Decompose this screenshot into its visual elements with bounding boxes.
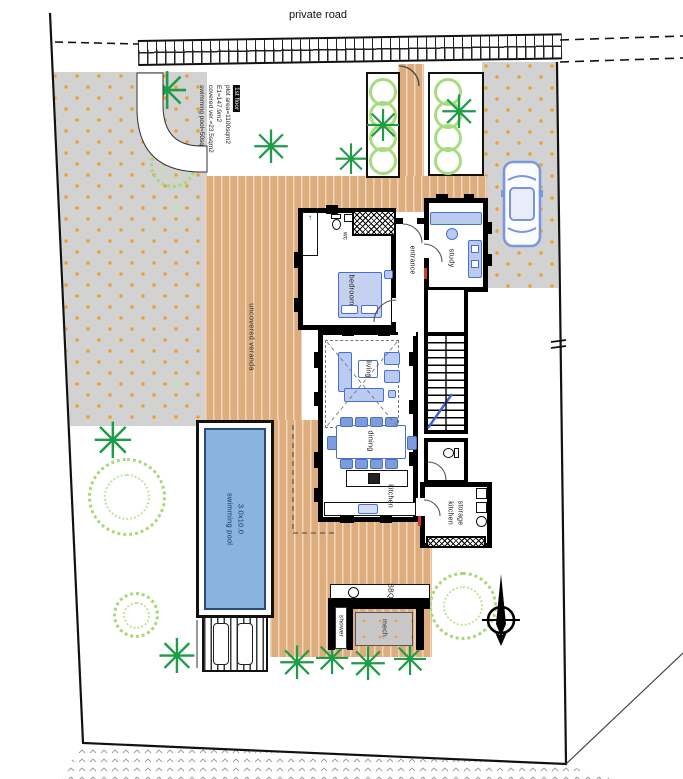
road-dashed-left xyxy=(55,42,138,44)
wc-label: wc xyxy=(342,232,349,240)
dining-label: dining xyxy=(367,430,376,451)
wall-pier xyxy=(409,400,418,414)
mech-label: mech. xyxy=(381,619,388,639)
appliance xyxy=(476,516,487,527)
dining-chair xyxy=(355,459,368,469)
staircase xyxy=(424,332,468,434)
notes-plot-area: plot area=1100sqm2 xyxy=(222,85,231,155)
study-chair xyxy=(446,228,458,240)
palm-tree-icon: ✳ xyxy=(349,641,388,687)
toilet2-tank xyxy=(454,448,459,458)
wall-pier xyxy=(314,392,323,406)
bbq-wall-stub xyxy=(347,606,353,650)
kitchen-label: kitchen xyxy=(387,484,394,508)
wall-pier xyxy=(314,352,323,368)
nightstand xyxy=(384,270,393,279)
stove xyxy=(368,473,380,484)
dining-chair xyxy=(370,459,383,469)
palm-tree-icon: ✳ xyxy=(365,105,402,149)
dining-chair xyxy=(385,417,398,427)
wardrobe xyxy=(352,210,396,236)
notes-e1: E1=147.9m2 xyxy=(214,85,223,155)
dining-chair xyxy=(340,459,353,469)
shrub-circle xyxy=(434,147,462,175)
dining-chair xyxy=(355,417,368,427)
wall-pier xyxy=(483,222,492,234)
palm-tree-icon: ✳ xyxy=(145,66,189,118)
side-table xyxy=(388,390,396,398)
living-label: living xyxy=(365,360,372,377)
site-plan: ↑ ✳ ✳ ✳ ✳ ✳ ✳ ✳ ✳ ✳ xyxy=(0,0,683,779)
kitchen-storage-label-2: storage xyxy=(457,501,464,526)
veranda-deck-west xyxy=(205,176,302,428)
palm-tree-icon: ✳ xyxy=(440,89,479,135)
swimming-pool xyxy=(204,428,266,610)
bbq-wall-stub xyxy=(328,606,335,650)
lounger-deck xyxy=(202,616,268,672)
toilet xyxy=(332,219,341,230)
living-door-gap xyxy=(398,328,416,336)
pool-size-label: 3.0x10.0 xyxy=(237,504,246,534)
pool-label: swimming pool xyxy=(226,493,235,545)
study-label: study xyxy=(448,249,457,268)
toilet2 xyxy=(443,448,454,458)
bbq-wall-stub xyxy=(416,606,424,650)
bush-icon xyxy=(429,572,497,640)
wall-pier xyxy=(409,352,418,366)
armchair xyxy=(384,352,400,365)
sofa-left xyxy=(338,352,352,392)
road-dashed-right-top xyxy=(560,36,683,40)
entrance-label: entrance xyxy=(409,246,416,275)
study-desk xyxy=(430,212,482,225)
cabinet-box xyxy=(471,245,479,253)
wall-pier xyxy=(464,194,474,203)
wall-pier xyxy=(409,452,418,466)
bbq-label: BBQ xyxy=(387,583,394,598)
notes-pool-area: swimming pool=50sqm2 xyxy=(196,85,205,155)
storage-door-gap xyxy=(416,498,426,516)
boundary-tick xyxy=(551,340,566,348)
bedroom-door-gap xyxy=(392,298,402,322)
bush-icon xyxy=(88,458,166,536)
bush-icon xyxy=(113,592,159,638)
bedroom-label: bedroom xyxy=(348,274,357,305)
entrance-jamb xyxy=(417,218,424,224)
appliance xyxy=(476,502,487,513)
veranda-deck-poolside xyxy=(270,420,322,522)
palm-tree-icon: ✳ xyxy=(252,124,291,170)
sun-lounger xyxy=(237,623,253,665)
dining-chair xyxy=(407,436,417,450)
palm-tree-icon: ✳ xyxy=(278,640,317,686)
bush-icon xyxy=(150,142,196,188)
palm-tree-icon: ✳ xyxy=(333,139,368,181)
storage-wall-hatch xyxy=(426,536,486,548)
dining-chair xyxy=(370,417,383,427)
corner-diagonal-line xyxy=(566,653,683,764)
verge-stipple xyxy=(62,744,612,779)
shower-label: shower xyxy=(338,615,345,637)
driveway xyxy=(482,62,558,288)
wall-pier xyxy=(314,452,323,468)
dining-chair xyxy=(385,459,398,469)
notes-floor: 1st floor xyxy=(233,85,240,112)
armchair xyxy=(384,370,400,383)
notes-covered-veranda: covered ver.=23.5sqm2 xyxy=(205,85,214,155)
wc-sink xyxy=(344,214,353,222)
sofa-bottom xyxy=(344,388,384,402)
palm-tree-icon: ✳ xyxy=(157,633,197,681)
wall-pier xyxy=(378,327,390,336)
dining-chair xyxy=(340,417,353,427)
wall-pier xyxy=(436,194,448,203)
kitchen-storage-label-1: kitchen xyxy=(447,501,454,525)
veranda-label: uncovered veranda xyxy=(248,303,257,371)
wall-pier xyxy=(294,298,303,312)
closet-arrow-icon: ↑ xyxy=(308,213,312,222)
closet: ↑ xyxy=(302,212,318,256)
pillow xyxy=(361,305,378,314)
cabinet-box xyxy=(471,260,479,268)
wall-pier xyxy=(326,205,338,214)
appliance xyxy=(476,488,487,499)
entry-walkway-deck xyxy=(398,64,424,180)
pillow xyxy=(341,305,358,314)
sun-lounger xyxy=(213,623,229,665)
wall-pier xyxy=(483,254,492,266)
kitchen-sink xyxy=(358,504,378,514)
road-dashed-right-bottom xyxy=(560,58,683,62)
hall-block xyxy=(424,290,468,336)
plan-notes: 1st floor plot area=1100sqm2 E1=147.9m2 … xyxy=(196,85,240,155)
wall-pier xyxy=(314,488,323,502)
bbq-sink xyxy=(348,587,359,598)
gravel-yard-left xyxy=(51,72,207,426)
wc2-block xyxy=(424,438,468,484)
study-door-gap xyxy=(420,240,430,258)
wall-pier xyxy=(342,327,354,336)
dining-chair xyxy=(327,436,337,450)
road-label: private road xyxy=(289,9,347,21)
entrance-jamb xyxy=(396,218,403,224)
